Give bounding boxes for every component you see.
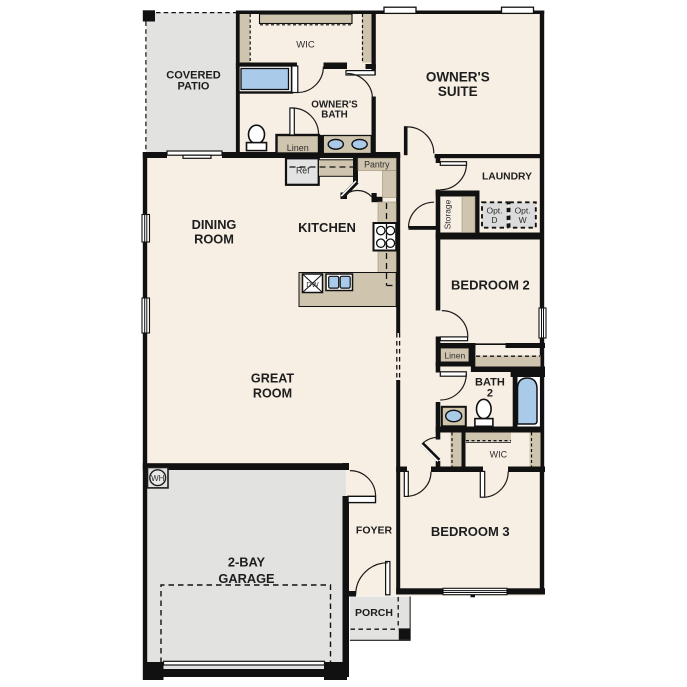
svg-text:Storage: Storage: [443, 199, 453, 229]
svg-text:ROOM: ROOM: [194, 231, 234, 246]
svg-text:BEDROOM 2: BEDROOM 2: [451, 278, 530, 293]
svg-text:BEDROOM 3: BEDROOM 3: [431, 524, 510, 539]
svg-text:W: W: [519, 215, 527, 225]
svg-text:GREAT: GREAT: [251, 372, 294, 386]
svg-text:Opt.: Opt.: [486, 205, 502, 215]
svg-text:KITCHEN: KITCHEN: [298, 220, 356, 235]
svg-text:Linen: Linen: [287, 143, 309, 153]
svg-text:SUITE: SUITE: [438, 84, 478, 99]
svg-text:2: 2: [487, 387, 493, 399]
svg-text:DW: DW: [306, 280, 319, 289]
svg-text:PORCH: PORCH: [355, 607, 393, 619]
svg-text:WIC: WIC: [296, 40, 315, 51]
svg-text:PATIO: PATIO: [178, 80, 210, 92]
svg-text:BATH: BATH: [321, 110, 347, 121]
svg-text:Pantry: Pantry: [364, 159, 390, 169]
svg-text:LAUNDRY: LAUNDRY: [482, 171, 532, 182]
svg-text:D: D: [491, 215, 497, 225]
svg-text:ROOM: ROOM: [253, 387, 292, 401]
svg-text:OWNER'S: OWNER'S: [426, 69, 490, 84]
svg-text:Opt.: Opt.: [515, 205, 531, 215]
svg-text:2-BAY: 2-BAY: [228, 555, 266, 570]
svg-text:WIC: WIC: [490, 450, 508, 460]
svg-text:Linen: Linen: [444, 350, 465, 360]
svg-text:GARAGE: GARAGE: [218, 571, 275, 586]
svg-text:DINING: DINING: [192, 217, 237, 232]
svg-text:WH: WH: [151, 474, 165, 483]
svg-text:FOYER: FOYER: [356, 525, 393, 537]
